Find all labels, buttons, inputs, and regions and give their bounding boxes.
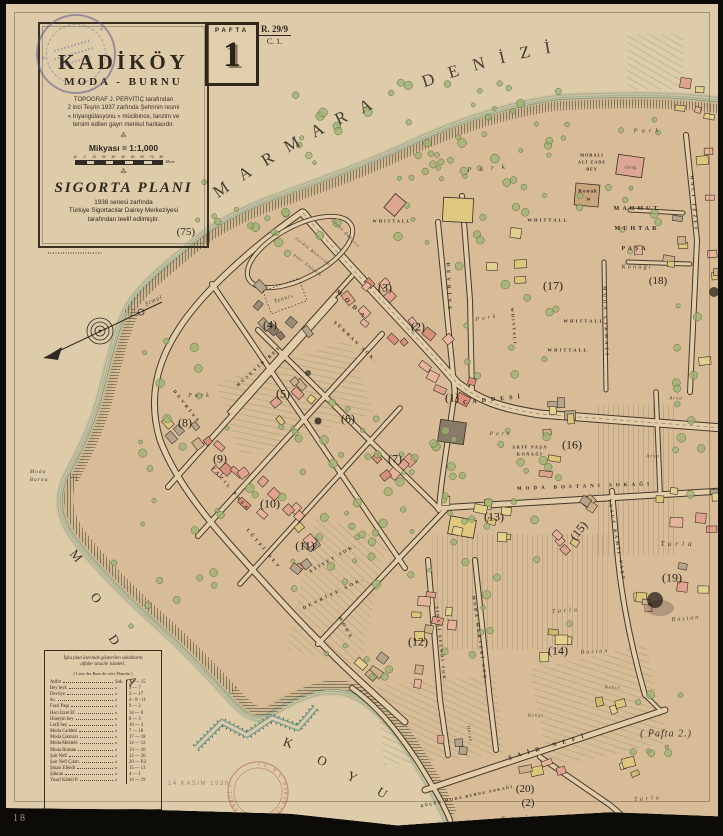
scale-tick: 20 [102,155,106,159]
page-number: 18 [13,813,27,824]
block-number: (19) [662,571,682,586]
block-number: (10) [260,497,280,512]
description-line: tersim edilen gayrı menkul haritasıdır. [40,121,207,129]
area-label: MAHMUT [614,206,661,212]
legend-leader-dots [82,762,113,763]
legend-rows: AtifetSok.12 — 15Bey leyk»9 — 7Devriye»2… [50,680,156,785]
legend-leader-dots [80,743,113,744]
area-label: WHITTALL [563,319,604,324]
legend-subheading: ( Liste des Rues de cette Planche ) [50,671,156,677]
area-label: MUHTAR [615,226,660,232]
scale-unit: Metre [165,159,174,164]
sheet-ref-top: R. 29/9 [258,24,291,36]
legend-leader-dots [69,725,113,726]
stamp-text-squiggle [61,56,92,67]
description-line: « triyangülasyonu » mücibince, tanzim ve [40,113,207,121]
legend-leader-dots [58,700,113,701]
area-label: AKİF PAŞA [512,445,547,450]
legend-leader-dots [78,750,113,751]
separator-ornament: ⁂ [40,168,207,175]
area-label: Garag. [625,165,638,170]
paper: MARMARA DENİZİ• G. & A. BAKER LİMİTED • … [6,4,718,832]
stamp-star-icon: ✳ [40,55,47,63]
block-number: (8) [178,416,192,431]
description-line: 2 inci Teşrin 1937 zarfında Şehrinin res… [40,104,207,112]
block-number: (2) [522,797,535,809]
block-number: (16) [562,438,582,453]
block-number: (17) [543,279,563,294]
scale-tick: 10 [73,155,77,159]
block-number: (9) [213,452,227,467]
plan-description-line: Türkiye Sigortacılar Dairey Merkeziyesi [40,207,207,216]
area-label: Park [188,393,212,399]
area-label: WHITTALL [547,348,588,353]
legend-row: Yusuf Kâmil P.»14 — 19 [50,778,156,784]
area-label: PAŞA [621,246,648,252]
scale-segment [152,160,164,165]
map-sheet: MARMARA DENİZİ• G. & A. BAKER LİMİTED • … [0,0,723,836]
block-number: (20) [516,783,534,795]
scale-tick: 0 [84,155,86,159]
area-label: Arsa [646,455,659,460]
stamp-star-icon: ✳ [98,25,105,33]
scale-bar: 1001020304050607080Metre [58,155,189,166]
block-number: (13) [484,510,504,525]
scale-tick: 60 [140,155,144,159]
description-line: TOPOGRAF J. PERVİTİÇ tarafından [40,96,207,104]
area-label: ALİ ZADE [578,160,606,165]
legend-street-type: » [115,778,126,784]
block-number: (14) [548,644,568,659]
legend-leader-dots [76,719,113,720]
block-number: (2) [411,320,425,335]
legend-leader-dots [65,774,113,775]
area-label: Tarla [501,813,541,824]
area-label: Arsa [669,397,682,402]
legend-leader-dots [78,713,113,714]
block-number: (12) [408,635,428,650]
pafta-number: 1 [208,34,256,74]
area-label: WHITTALL [527,218,568,223]
area-label: ( Pafta 2.) [640,729,692,740]
separator-ornament: ⁂ [40,132,207,139]
legend-street-name: Yusuf Kâmil P. [50,778,78,784]
area-label: Park [634,128,663,135]
area-label: KONAĞI [517,452,543,457]
block-number: (1) [445,391,459,406]
scale-tick: 80 [160,155,164,159]
scale-tick: 40 [121,155,125,159]
legend-block-numbers: 14 — 19 [126,778,156,784]
legend-leader-dots [69,756,113,757]
sheet-ref: R. 29/9 C. 1. [258,24,291,46]
scale-tick: 30 [112,155,116,159]
legend-leader-dots [80,780,113,781]
area-label: Konak [578,190,597,195]
block-number: (4) [263,318,277,333]
block-number: (3) [378,281,392,296]
legend-leader-dots [77,768,113,769]
legend-leader-dots [80,737,113,738]
area-label: MORALI [580,153,604,158]
area-label: BEY [586,167,598,172]
block-number: (11) [295,539,315,554]
date-stamp: 14 KASIM 1938 [168,781,230,787]
block-number: (5) [276,387,290,402]
legend-leader-dots [63,682,113,683]
sheet-number: (75) [177,226,195,238]
area-label: Burnu [30,477,49,483]
plan-description: 1938 senesi zarfında Türkiye Sigortacıla… [40,199,207,225]
map-description: TOPOGRAF J. PERVİTİÇ tarafından 2 inci T… [40,96,207,130]
plan-description-line: 1938 senesi zarfında [40,199,207,208]
area-label: 34 [586,197,590,202]
street-legend: İşbu plan üzerinde gösterilen sokakların… [44,650,162,810]
block-number: (7) [388,452,402,467]
legend-heading: alfabe sırasile isimleri. [50,662,156,668]
scale-tick: 50 [131,155,135,159]
legend-leader-dots [79,731,113,732]
block-number: (6) [341,412,355,427]
printer-imprint [48,252,102,254]
block-number: (18) [649,275,667,287]
legend-leader-dots [69,688,113,689]
area-label: WHITTALL [373,219,412,224]
area-label: Park [490,431,513,437]
scale-tick: 70 [150,155,154,159]
sheet-ref-bottom: C. 1. [258,36,291,46]
plan-title: SIGORTA PLANI [40,180,207,197]
area-label: Konağı [621,264,652,271]
legend-leader-dots [67,694,113,695]
area-label: Bahçe [605,685,621,690]
area-label: Bahçe [528,713,544,718]
area-label: Tarla [661,540,696,548]
scale-label: Mikyası = 1:1,000 [40,143,207,153]
plan-description-line: tarafından teelif edilmiştir. [40,216,207,225]
pafta-box: PAFTA 1 [205,22,259,86]
area-label: Moda [30,469,47,475]
scale-tick: 10 [92,155,96,159]
legend-leader-dots [71,706,113,707]
